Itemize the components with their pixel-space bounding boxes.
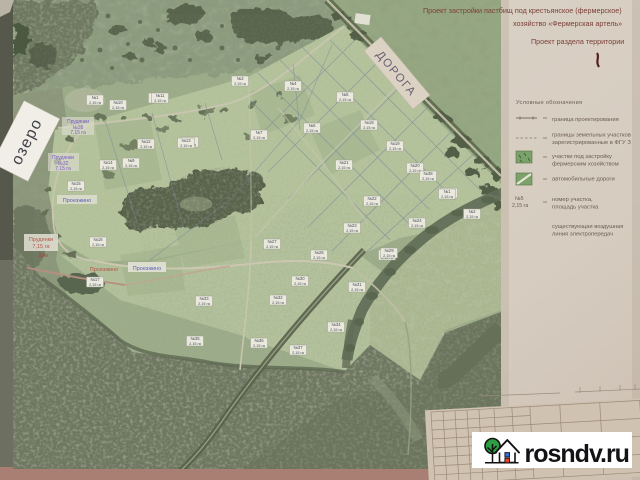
svg-text:2,15 га: 2,15 га [441,195,454,199]
svg-text:№14: №14 [103,160,113,165]
svg-text:Проезжино: Проезжино [133,266,161,272]
svg-text:хозяйство «Фермерская артель»: хозяйство «Фермерская артель» [513,19,622,28]
svg-text:№22: №22 [367,196,377,201]
svg-text:2,15 га: 2,15 га [198,302,211,306]
svg-text:линия электропередач: линия электропередач [552,232,613,238]
svg-text:2,15 га: 2,15 га [125,164,138,168]
svg-text:2,15 га: 2,15 га [466,215,479,219]
svg-text:№7: №7 [256,130,263,135]
svg-text:№31: №31 [352,282,362,287]
svg-text:Прудянки: Прудянки [29,237,53,243]
svg-text:№6: №6 [309,123,316,128]
svg-text:7,15 га: 7,15 га [70,130,86,136]
svg-text:2,15 га: 2,15 га [180,144,193,148]
svg-text:rosndv.ru: rosndv.ru [525,440,629,468]
svg-text:2,15 га: 2,15 га [154,99,167,103]
svg-text:2,15 га: 2,15 га [189,342,202,346]
svg-text:№27: №27 [267,239,277,244]
svg-text:№23: №23 [347,223,357,228]
svg-text:№38: №38 [423,171,433,176]
svg-text:Условные обозначения: Условные обозначения [516,100,582,106]
svg-text:№15: №15 [71,181,81,186]
svg-text:№16: №16 [93,237,103,242]
svg-text:площадь участка: площадь участка [552,205,599,211]
svg-text:2,15 га: 2,15 га [253,136,266,140]
svg-text:№35: №35 [190,336,200,341]
svg-text:2,15 га: 2,15 га [306,129,319,133]
svg-text:№33: №33 [199,296,209,301]
svg-text:№3: №3 [237,76,244,81]
svg-text:№2: №2 [469,209,476,214]
svg-text:№20: №20 [410,163,420,168]
svg-text:2,15 га: 2,15 га [313,256,326,260]
svg-text:2,15 га: 2,15 га [383,254,396,258]
svg-text:зарегистрированные в ФГУ З: зарегистрированные в ФГУ З [552,140,631,146]
svg-text:№4: №4 [290,81,297,86]
svg-text:№9: №9 [128,158,135,163]
svg-text:№28: №28 [314,250,324,255]
svg-text:фермерским хозяйством: фермерским хозяйством [552,161,619,168]
svg-text:Дом: Дом [38,253,48,259]
svg-text:№12: №12 [141,139,151,144]
svg-text:№5: №5 [342,92,349,97]
svg-text:№36: №36 [254,338,264,343]
svg-text:№10: №10 [113,100,123,105]
svg-text:№19: №19 [390,141,400,146]
svg-text:№24: №24 [412,218,422,223]
svg-text:2,15 га: 2,15 га [294,282,307,286]
svg-text:2,15 га: 2,15 га [112,106,125,110]
svg-text:№1: №1 [444,189,451,194]
svg-text:границы земельных участков: границы земельных участков [552,133,631,139]
svg-text:существующая воздушная: существующая воздушная [552,224,623,230]
svg-text:2,15 га: 2,15 га [411,224,424,228]
svg-text:№32: №32 [273,295,283,300]
svg-text:7,15 га: 7,15 га [55,166,71,172]
svg-text:№30: №30 [295,276,305,281]
svg-text:2,15 га: 2,15 га [292,351,305,355]
svg-text:2,15 га: 2,15 га [89,283,102,287]
svg-text:№11: №11 [156,93,166,98]
svg-text:№29: №29 [384,248,394,253]
svg-text:автомобильные дороги: автомобильные дороги [552,177,615,183]
svg-text:2,15 га: 2,15 га [389,147,402,151]
svg-text:Проезжино: Проезжино [63,198,91,204]
svg-text:2,15 га: 2,15 га [363,126,376,130]
svg-text:2,15 га: 2,15 га [253,344,266,348]
svg-text:№34: №34 [331,322,341,327]
svg-text:№1: №1 [92,95,99,100]
svg-text:Проезжино: Проезжино [90,267,118,273]
svg-text:2,15 га: 2,15 га [92,243,105,247]
svg-text:2,15 га: 2,15 га [140,145,153,149]
svg-text:Проект раздела территории: Проект раздела территории [531,37,624,46]
svg-text:Проект застройки пастбищ под к: Проект застройки пастбищ под крестьянско… [423,6,622,15]
svg-text:2,15 га: 2,15 га [266,245,279,249]
svg-text:2,15 га: 2,15 га [351,288,364,292]
svg-text:№5: №5 [515,196,524,202]
svg-text:2,15 га: 2,15 га [512,203,528,209]
svg-text:номер участка,: номер участка, [552,197,593,203]
svg-text:граница проектирования: граница проектирования [552,117,619,123]
svg-text:2,15 га: 2,15 га [330,328,343,332]
svg-text:2,15 га: 2,15 га [422,177,435,181]
svg-text:участки под застройку: участки под застройку [552,153,612,160]
svg-text:№13: №13 [181,138,191,143]
svg-text:2,15 га: 2,15 га [102,166,115,170]
svg-text:№21: №21 [339,160,349,165]
svg-text:7,15 га: 7,15 га [32,244,50,250]
svg-text:2,15 га: 2,15 га [346,229,359,233]
svg-text:№37: №37 [293,345,303,350]
svg-text:2,15 га: 2,15 га [272,301,285,305]
svg-text:2,15 га: 2,15 га [89,101,102,105]
svg-text:2,15 га: 2,15 га [70,187,83,191]
svg-text:2,15 га: 2,15 га [366,202,379,206]
svg-text:№17: №17 [90,277,100,282]
svg-text:2,15 га: 2,15 га [338,166,351,170]
svg-text:2,15 га: 2,15 га [234,82,247,86]
svg-text:№18: №18 [364,120,374,125]
svg-text:2,15 га: 2,15 га [339,98,352,102]
svg-text:2,15 га: 2,15 га [287,87,300,91]
